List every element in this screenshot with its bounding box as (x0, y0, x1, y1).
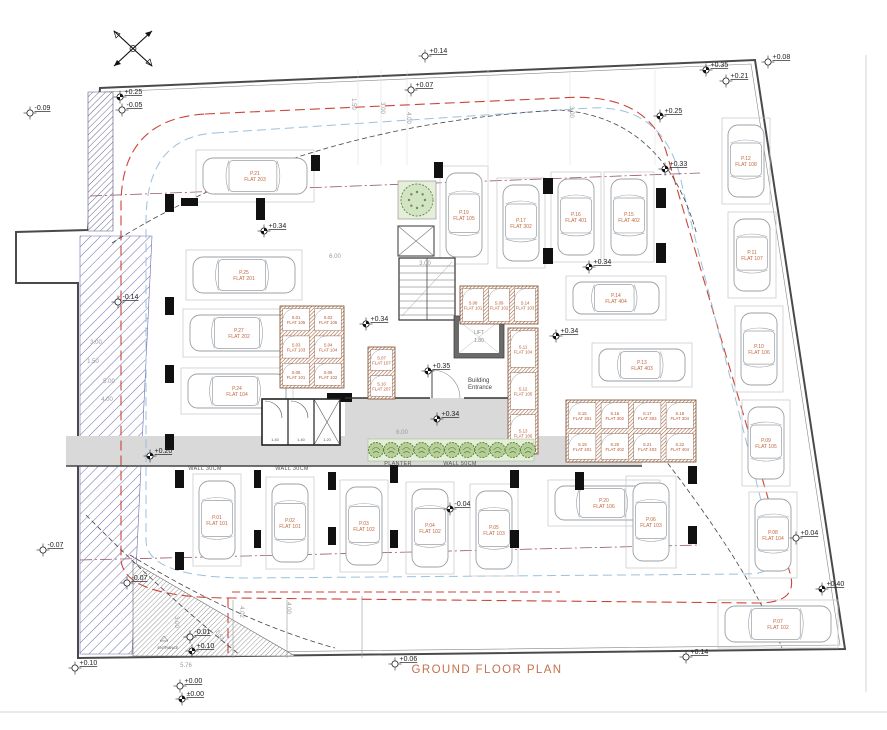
storage-flat: FLAT 304 (671, 416, 690, 421)
dimension-label: 1.50 (87, 359, 99, 365)
elevation-value: +0.34 (371, 316, 389, 323)
bin-dim: 1.20 (323, 438, 330, 442)
site-entrance-label: ENTRANCE (158, 646, 179, 650)
dimension-label: 3.00 (173, 616, 179, 628)
planter-bush (399, 443, 414, 458)
parking-flat: FLAT 102 (353, 527, 375, 533)
parking-space: P.03FLAT 102 (340, 480, 388, 572)
elevation-value: -0.07 (132, 575, 148, 582)
parking-space: P.04FLAT 102 (406, 482, 454, 574)
elevation-marker: +0.08 (762, 54, 791, 69)
elevation-value: +0.33 (670, 161, 688, 168)
storage-block: S.07FLAT 107S.10FLAT 207 (368, 347, 395, 399)
parking-flat: FLAT 302 (510, 224, 532, 230)
storage-flat: FLAT 101 (287, 375, 306, 380)
elevation-value: +0.14 (430, 48, 448, 55)
bin-dim: 1.40 (297, 438, 304, 442)
elevation-value: +0.06 (400, 656, 418, 663)
elevation-value: +0.21 (731, 73, 749, 80)
shaft-x (398, 226, 434, 256)
title-block: GROUND FLOOR PLAN (412, 664, 563, 676)
column (543, 178, 553, 194)
staircase (399, 258, 455, 320)
storage-flat: FLAT 102 (319, 375, 338, 380)
dimension-label: 4.02 (238, 606, 244, 618)
column (175, 552, 184, 570)
lift-label: LIFT (474, 330, 484, 336)
storage-flat: FLAT 402 (606, 447, 625, 452)
parking-space: P.01FLAT 101 (193, 474, 241, 566)
parking-space: P.08FLAT 104 (749, 492, 797, 578)
elevation-value: +0.34 (561, 328, 579, 335)
parking-flat: FLAT 104 (762, 536, 784, 542)
storage-flat: FLAT 401 (573, 447, 592, 452)
wall-label: WALL 50CM (443, 461, 477, 467)
parking-flat: FLAT 108 (735, 162, 757, 168)
bin-rooms: 1.401.401.20 (262, 399, 340, 446)
storage-flat: FLAT 106 (514, 434, 533, 439)
parking-space: P.25FLAT 201 (186, 250, 302, 300)
storage-flat: FLAT 404 (671, 447, 690, 452)
column (165, 194, 174, 212)
ground-floor-plan-drawing: P.21FLAT 203P.25FLAT 201P.27FLAT 202P.24… (0, 0, 887, 730)
elevation-value: +0.34 (594, 259, 612, 266)
dimension-label: 6.00 (329, 254, 341, 260)
elevation-value: +0.35 (433, 363, 451, 370)
plan-title: GROUND FLOOR PLAN (412, 664, 563, 676)
elevation-value: -0.05 (127, 102, 143, 109)
parking-flat: FLAT 105 (755, 444, 777, 450)
wall-label: WALL 30CM (275, 466, 309, 472)
elevation-value: +0.40 (827, 581, 845, 588)
elevation-value: +0.10 (80, 660, 98, 667)
elevation-value: +0.25 (125, 89, 143, 96)
parking-space: P.06FLAT 103 (626, 476, 676, 568)
storage-room: S.20FLAT 402 (601, 434, 628, 460)
parking-flat: FLAT 106 (748, 350, 770, 356)
storage-room: S.16FLAT 302 (601, 403, 628, 429)
elevation-value: -0.09 (35, 105, 51, 112)
dimension-label: 6.00 (396, 430, 408, 436)
parking-flat: FLAT 404 (605, 299, 627, 305)
parking-flat: FLAT 101 (279, 524, 301, 530)
elevation-marker: -0.09 (24, 105, 51, 120)
parking-space: P.02FLAT 101 (266, 477, 314, 569)
planter-bush (384, 443, 399, 458)
entrance-label-2: Entrance (468, 385, 493, 391)
elevation-value: -0.07 (48, 542, 64, 549)
elevation-value: +0.20 (155, 448, 173, 455)
storage-room: S.17FLAT 303 (634, 403, 661, 429)
parking-space: P.15FLAT 402 (604, 172, 654, 262)
storage-room: S.14FLAT 103 (515, 289, 536, 322)
entrance-label-1: Building (468, 378, 489, 384)
planter-bush (505, 443, 520, 458)
walkway-band (66, 436, 642, 466)
elevation-value: +0.14 (691, 649, 709, 656)
parking-flat: FLAT 401 (565, 218, 587, 224)
column (254, 470, 261, 488)
parking-flat: FLAT 102 (419, 529, 441, 535)
dimension-label: 3.00 (90, 340, 102, 346)
storage-block: S.08FLAT 101S.09FLAT 102S.14FLAT 103 (460, 286, 538, 324)
column (575, 472, 584, 490)
column (181, 198, 198, 206)
elevation-value: -0.04 (455, 501, 471, 508)
storage-flat: FLAT 107 (372, 361, 391, 366)
storage-room: S.05FLAT 101 (283, 363, 310, 385)
parking-flat: FLAT 102 (767, 625, 789, 631)
dimension-label: 3.00 (419, 261, 431, 267)
column (165, 297, 174, 315)
parking-flat: FLAT 403 (631, 366, 653, 372)
parking-flat: FLAT 202 (228, 334, 250, 340)
planter-bush (369, 443, 384, 458)
elevation-value: +0.34 (269, 223, 287, 230)
storage-block: S.11FLAT 104S.12FLAT 105S.13FLAT 106 (508, 328, 538, 454)
elevation-marker: ±0.00 (176, 691, 205, 706)
dimension-label: 3.00 (568, 106, 574, 118)
column (328, 472, 336, 490)
dimension-label: 4.00 (101, 397, 113, 403)
parking-space: P.27FLAT 202 (183, 309, 295, 357)
storage-room: S.11FLAT 104 (511, 331, 536, 368)
north-arrow (114, 31, 152, 66)
parking-space: P.12FLAT 108 (722, 118, 770, 204)
column (656, 243, 666, 263)
parking-flat: FLAT 201 (233, 276, 255, 282)
column (688, 466, 697, 484)
elevation-value: +0.08 (773, 54, 791, 61)
storage-room: S.07FLAT 107 (371, 350, 393, 371)
column (175, 470, 184, 488)
floor-plan-sheet: P.21FLAT 203P.25FLAT 201P.27FLAT 202P.24… (0, 0, 887, 730)
planter-row (368, 439, 536, 461)
storage-flat: FLAT 103 (516, 306, 535, 311)
elevation-value: -0.14 (123, 294, 139, 301)
storage-room: S.02FLAT 106 (315, 309, 342, 331)
dimension-label: 4.00 (285, 602, 291, 614)
dimension-label: 5.76 (180, 663, 192, 669)
parking-flat: FLAT 402 (618, 218, 640, 224)
column (510, 530, 519, 548)
column (688, 526, 697, 544)
elevation-value: ±0.00 (187, 691, 205, 698)
storage-room: S.15FLAT 301 (569, 403, 596, 429)
storage-flat: FLAT 104 (319, 348, 338, 353)
parking-space: P.10FLAT 106 (735, 306, 783, 392)
elevation-value: +0.25 (665, 108, 683, 115)
hatch-strip-topleft (88, 92, 113, 231)
parking-flat: FLAT 105 (453, 216, 475, 222)
storage-room: S.08FLAT 101 (463, 289, 484, 322)
planter-bush (429, 443, 444, 458)
elevation-marker: +0.14 (419, 48, 448, 63)
planter-bush (521, 443, 536, 458)
storage-flat: FLAT 105 (287, 320, 306, 325)
parking-space: P.19FLAT 105 (440, 166, 488, 264)
column (256, 198, 265, 220)
storage-flat: FLAT 105 (514, 392, 533, 397)
storage-room: S.09FLAT 102 (489, 289, 510, 322)
elevation-marker: +0.10 (69, 660, 98, 675)
parking-space: P.14FLAT 404 (566, 276, 666, 320)
parking-flat: FLAT 106 (593, 504, 615, 510)
storage-flat: FLAT 302 (606, 416, 625, 421)
wall-label: WALL 30CM (188, 466, 222, 472)
bin-dim: 1.40 (271, 438, 278, 442)
column (434, 162, 443, 178)
parking-space: P.16FLAT 401 (551, 172, 601, 262)
column (328, 527, 336, 545)
planter-bush (490, 443, 505, 458)
elevation-value: +0.04 (801, 530, 819, 537)
storage-flat: FLAT 301 (573, 416, 592, 421)
parking-flat: FLAT 103 (640, 523, 662, 529)
dimension-label: 3.00 (379, 102, 385, 114)
planter-bush (445, 443, 460, 458)
storage-room: S.04FLAT 104 (315, 336, 342, 358)
storage-flat: FLAT 303 (638, 416, 657, 421)
column (165, 365, 174, 383)
storage-room: S.19FLAT 401 (569, 434, 596, 460)
storage-flat: FLAT 102 (490, 306, 509, 311)
storage-room: S.21FLAT 403 (634, 434, 661, 460)
dimension-label: 1.50 (350, 98, 356, 110)
storage-block: S.01FLAT 105S.02FLAT 106S.03FLAT 103S.04… (280, 306, 344, 388)
elevation-value: +0.07 (416, 82, 434, 89)
storage-room: S.03FLAT 103 (283, 336, 310, 358)
column (254, 530, 261, 548)
column (311, 155, 320, 171)
parking-flat: FLAT 103 (483, 531, 505, 537)
lift-dim: 1.80 (474, 338, 484, 344)
column (656, 188, 666, 208)
parking-space: P.13FLAT 403 (592, 343, 692, 387)
planter-bush (414, 443, 429, 458)
elevation-marker: -0.07 (37, 542, 64, 557)
storage-flat: FLAT 104 (514, 350, 533, 355)
parking-space: P.09FLAT 105 (742, 400, 790, 486)
storage-room: S.10FLAT 207 (371, 376, 393, 397)
parking-flat: FLAT 203 (244, 177, 266, 183)
parking-space: P.07FLAT 102 (718, 600, 838, 648)
storage-flat: FLAT 101 (464, 306, 483, 311)
planter-bush (460, 443, 475, 458)
parking-space: P.21FLAT 203 (196, 150, 314, 202)
storage-room: S.18FLAT 304 (666, 403, 693, 429)
storage-flat: FLAT 106 (319, 320, 338, 325)
storage-room: S.06FLAT 102 (315, 363, 342, 385)
storage-flat: FLAT 207 (372, 387, 391, 392)
parking-space: P.11FLAT 107 (728, 212, 776, 298)
column (510, 470, 519, 488)
storage-flat: FLAT 103 (287, 348, 306, 353)
column (390, 530, 398, 548)
storage-room: S.01FLAT 105 (283, 309, 310, 331)
column (390, 465, 398, 483)
storage-block: S.15FLAT 301S.16FLAT 302S.17FLAT 303S.18… (566, 400, 696, 462)
dimension-label: 5.00 (103, 379, 115, 385)
elevation-value: +0.10 (197, 643, 215, 650)
storage-room: S.12FLAT 105 (511, 373, 536, 410)
tree-icon (401, 184, 433, 216)
elevation-value: -0.01 (195, 629, 211, 636)
parking-flat: FLAT 107 (741, 256, 763, 262)
storage-flat: FLAT 403 (638, 447, 657, 452)
column (543, 248, 553, 264)
storage-room: S.22FLAT 404 (666, 434, 693, 460)
planter-bush (475, 443, 490, 458)
parking-space: P.17FLAT 302 (497, 178, 545, 268)
elevation-value: +0.34 (442, 411, 460, 418)
wall-label: PLANTER (384, 461, 411, 467)
parking-flat: FLAT 104 (226, 392, 248, 398)
elevation-value: +0.00 (185, 678, 203, 685)
parking-flat: FLAT 101 (206, 521, 228, 527)
dimension-label: 4.00 (405, 112, 411, 124)
elevation-value: +0.35 (711, 62, 729, 69)
